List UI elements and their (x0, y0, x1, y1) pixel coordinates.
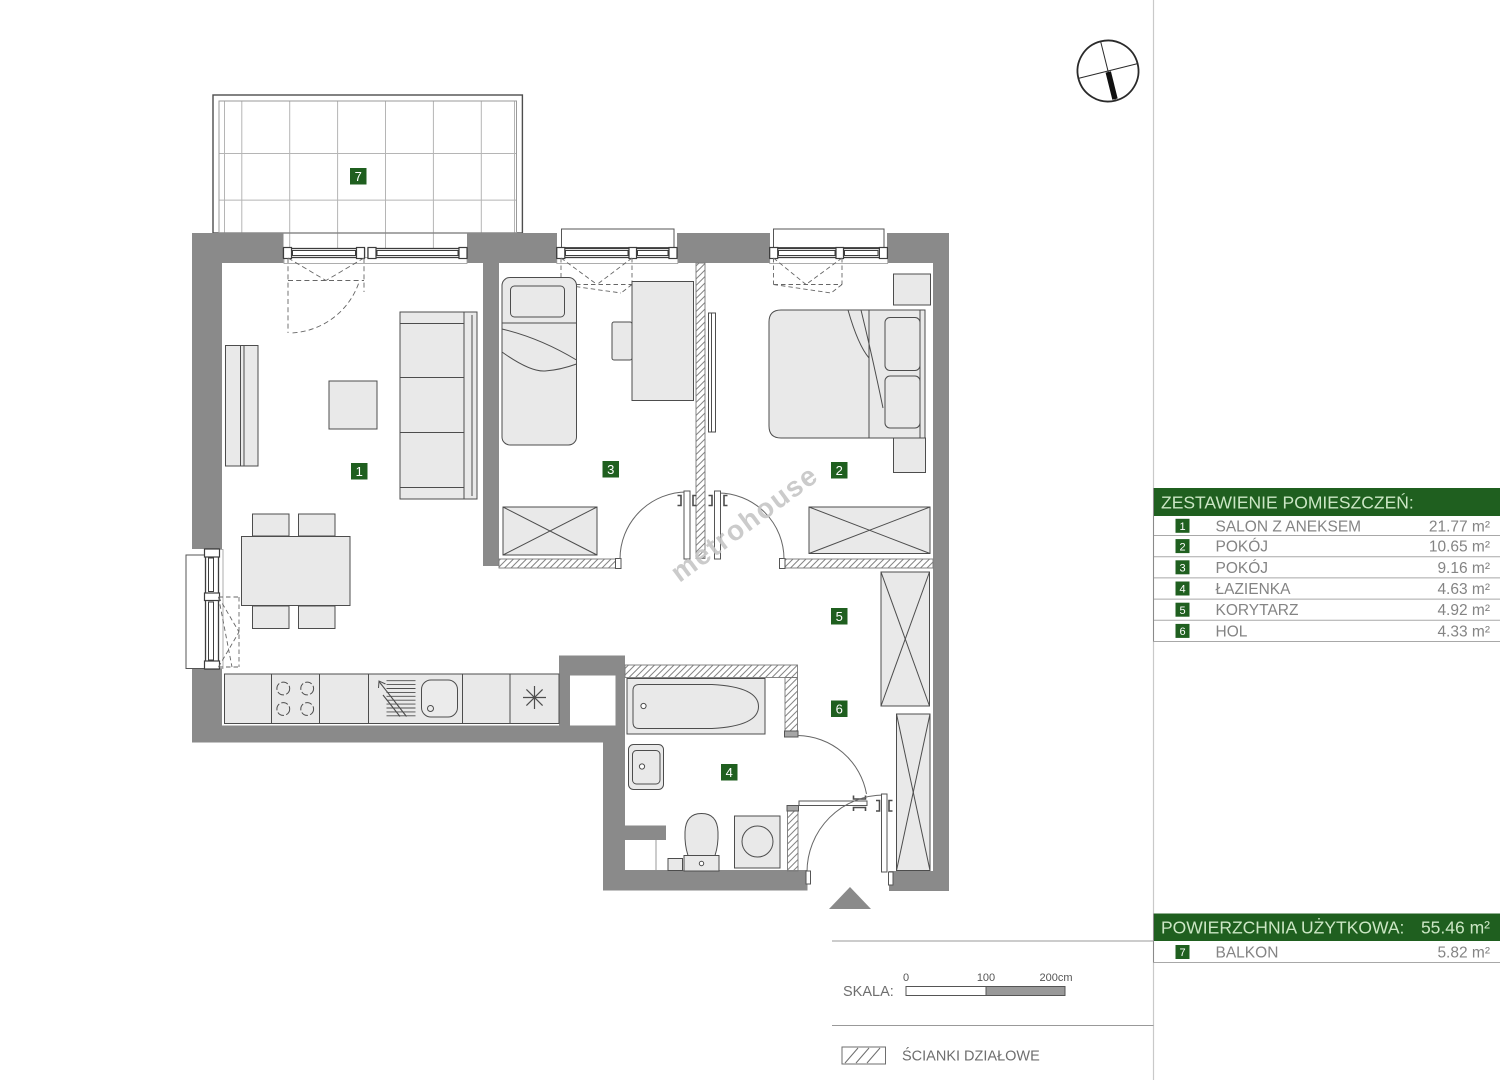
svg-text:KORYTARZ: KORYTARZ (1216, 602, 1299, 619)
svg-text:ŚCIANKI DZIAŁOWE: ŚCIANKI DZIAŁOWE (902, 1047, 1040, 1065)
svg-text:7: 7 (355, 169, 362, 184)
svg-text:1: 1 (356, 464, 363, 479)
svg-text:5.82 m²: 5.82 m² (1437, 945, 1490, 962)
svg-text:4: 4 (726, 765, 733, 780)
svg-text:6: 6 (1179, 626, 1185, 638)
svg-text:ŁAZIENKA: ŁAZIENKA (1216, 581, 1292, 598)
svg-text:4.63 m²: 4.63 m² (1437, 581, 1490, 598)
svg-text:200cm: 200cm (1039, 972, 1072, 984)
svg-text:3: 3 (607, 462, 614, 477)
svg-text:21.77 m²: 21.77 m² (1429, 518, 1490, 535)
svg-text:2: 2 (836, 463, 843, 478)
svg-text:SALON Z ANEKSEM: SALON Z ANEKSEM (1216, 518, 1362, 535)
svg-text:4: 4 (1179, 584, 1185, 596)
svg-text:ZESTAWIENIE POMIESZCZEŃ:: ZESTAWIENIE POMIESZCZEŃ: (1161, 493, 1414, 513)
svg-text:4.92 m²: 4.92 m² (1437, 602, 1490, 619)
svg-text:2: 2 (1179, 541, 1185, 553)
svg-text:BALKON: BALKON (1216, 945, 1279, 962)
svg-text:55.46 m²: 55.46 m² (1421, 918, 1490, 938)
svg-text:6: 6 (836, 702, 843, 717)
svg-text:1: 1 (1179, 521, 1185, 533)
svg-text:3: 3 (1179, 563, 1185, 575)
svg-text:POKÓJ: POKÓJ (1216, 560, 1269, 577)
svg-text:5: 5 (1179, 605, 1185, 617)
svg-text:10.65 m²: 10.65 m² (1429, 539, 1490, 556)
svg-text:0: 0 (903, 972, 909, 984)
svg-text:POKÓJ: POKÓJ (1216, 539, 1269, 556)
svg-text:HOL: HOL (1216, 623, 1248, 640)
svg-text:POWIERZCHNIA UŻYTKOWA:: POWIERZCHNIA UŻYTKOWA: (1161, 918, 1404, 938)
svg-text:5: 5 (836, 609, 843, 624)
svg-text:SKALA:: SKALA: (843, 984, 894, 1000)
svg-text:4.33 m²: 4.33 m² (1437, 623, 1490, 640)
svg-text:100: 100 (977, 972, 995, 984)
svg-text:7: 7 (1179, 947, 1185, 959)
svg-text:9.16 m²: 9.16 m² (1437, 560, 1490, 577)
